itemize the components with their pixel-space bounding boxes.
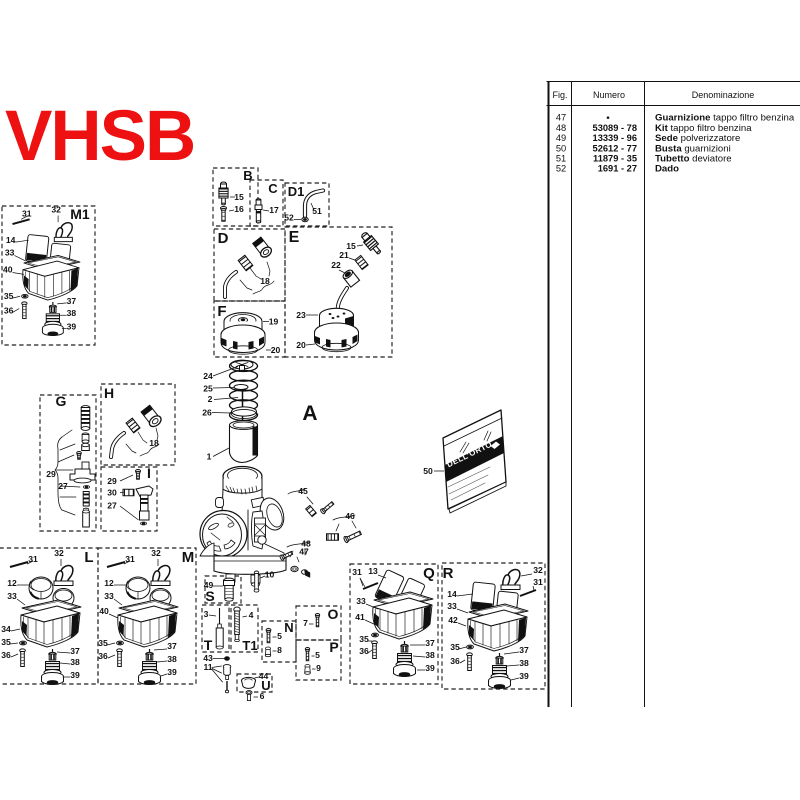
svg-text:51: 51 (556, 154, 566, 164)
svg-text:32: 32 (151, 548, 161, 558)
svg-text:15: 15 (234, 192, 244, 202)
svg-text:53089 - 78: 53089 - 78 (593, 123, 637, 133)
svg-text:35: 35 (98, 638, 108, 648)
svg-text:23: 23 (296, 310, 306, 320)
svg-text:A: A (302, 402, 317, 425)
svg-text:39: 39 (70, 670, 80, 680)
svg-text:F: F (217, 303, 226, 320)
svg-text:14: 14 (447, 589, 457, 599)
svg-text:3: 3 (204, 609, 209, 619)
svg-text:G: G (56, 393, 67, 409)
svg-text:35: 35 (4, 291, 14, 301)
svg-text:37: 37 (67, 296, 77, 306)
svg-text:36: 36 (4, 305, 14, 315)
svg-text:36: 36 (98, 651, 108, 661)
svg-text:39: 39 (425, 663, 435, 673)
svg-text:30: 30 (107, 488, 117, 498)
svg-text:N: N (284, 620, 293, 635)
svg-text:12: 12 (104, 578, 114, 588)
svg-text:B: B (243, 168, 252, 183)
svg-text:T: T (204, 637, 213, 653)
svg-text:Q: Q (423, 565, 435, 582)
svg-text:27: 27 (107, 501, 117, 511)
svg-text:37: 37 (167, 641, 177, 651)
svg-text:19: 19 (269, 317, 279, 327)
svg-text:14: 14 (6, 235, 16, 245)
svg-text:9: 9 (316, 663, 321, 673)
svg-text:12: 12 (7, 578, 17, 588)
svg-text:38: 38 (70, 657, 80, 667)
svg-text:31: 31 (28, 554, 38, 564)
svg-text:D1: D1 (288, 184, 305, 199)
svg-text:L: L (84, 549, 93, 566)
svg-text:39: 39 (519, 671, 529, 681)
svg-text:37: 37 (70, 646, 80, 656)
svg-text:25: 25 (203, 384, 213, 394)
svg-text:39: 39 (67, 322, 77, 332)
svg-text:49: 49 (556, 133, 566, 143)
svg-text:52612 - 77: 52612 - 77 (593, 143, 637, 153)
svg-text:33: 33 (104, 591, 114, 601)
svg-text:47: 47 (556, 113, 566, 123)
svg-text:H: H (104, 385, 114, 401)
svg-text:•: • (606, 113, 609, 123)
svg-text:18: 18 (260, 276, 270, 286)
svg-text:44: 44 (259, 671, 269, 681)
svg-text:11879 - 35: 11879 - 35 (593, 154, 637, 164)
svg-text:31: 31 (125, 554, 135, 564)
svg-text:29: 29 (107, 476, 117, 486)
svg-text:33: 33 (447, 601, 457, 611)
svg-text:46: 46 (345, 511, 355, 521)
svg-text:Fig.: Fig. (552, 90, 567, 100)
svg-text:38: 38 (519, 658, 529, 668)
svg-text:P: P (329, 639, 338, 655)
svg-text:27: 27 (58, 481, 68, 491)
svg-text:39: 39 (167, 667, 177, 677)
svg-text:7: 7 (303, 618, 308, 628)
svg-text:38: 38 (67, 308, 77, 318)
svg-text:I: I (147, 465, 151, 481)
svg-text:33: 33 (356, 596, 366, 606)
svg-text:37: 37 (519, 645, 529, 655)
svg-text:35: 35 (1, 637, 11, 647)
svg-text:13339 - 96: 13339 - 96 (593, 133, 637, 143)
svg-text:38: 38 (425, 650, 435, 660)
svg-text:6: 6 (260, 691, 265, 701)
svg-text:24: 24 (203, 371, 213, 381)
svg-text:52: 52 (556, 164, 566, 174)
svg-text:20: 20 (296, 340, 306, 350)
svg-text:17: 17 (269, 205, 279, 215)
svg-text:34: 34 (1, 624, 11, 634)
svg-text:11: 11 (203, 662, 212, 672)
svg-text:36: 36 (359, 646, 369, 656)
svg-text:T1: T1 (242, 638, 257, 653)
svg-text:Denominazione: Denominazione (692, 90, 755, 100)
svg-text:50: 50 (423, 466, 433, 476)
svg-text:18: 18 (149, 438, 159, 448)
svg-text:29: 29 (46, 469, 56, 479)
svg-text:49: 49 (204, 580, 214, 590)
svg-text:Dado: Dado (655, 164, 679, 175)
svg-text:33: 33 (5, 247, 15, 257)
svg-text:33: 33 (7, 591, 17, 601)
svg-text:32: 32 (51, 205, 61, 215)
svg-text:51: 51 (312, 206, 322, 216)
svg-text:S: S (205, 588, 214, 604)
svg-text:20: 20 (271, 345, 281, 355)
svg-text:35: 35 (359, 634, 369, 644)
svg-text:37: 37 (425, 638, 435, 648)
svg-text:31: 31 (22, 208, 32, 218)
svg-text:38: 38 (167, 654, 177, 664)
svg-text:32: 32 (533, 565, 543, 575)
svg-text:8: 8 (277, 645, 282, 655)
svg-text:4: 4 (249, 610, 254, 620)
svg-text:22: 22 (331, 260, 341, 270)
svg-text:16: 16 (234, 204, 244, 214)
svg-text:41: 41 (355, 612, 365, 622)
svg-text:32: 32 (54, 548, 64, 558)
svg-text:48: 48 (556, 123, 566, 133)
svg-text:1691 - 27: 1691 - 27 (598, 164, 637, 174)
svg-text:40: 40 (99, 606, 109, 616)
svg-text:5: 5 (315, 650, 320, 660)
svg-text:21: 21 (339, 250, 349, 260)
svg-text:1: 1 (207, 452, 212, 462)
svg-text:42: 42 (448, 615, 458, 625)
svg-text:C: C (268, 181, 278, 196)
svg-text:VHSB: VHSB (5, 97, 194, 176)
svg-text:O: O (328, 606, 339, 622)
svg-text:10: 10 (265, 570, 275, 580)
svg-text:36: 36 (1, 650, 11, 660)
svg-text:36: 36 (450, 656, 460, 666)
svg-text:E: E (289, 229, 300, 246)
svg-text:40: 40 (3, 265, 13, 275)
svg-text:26: 26 (202, 408, 212, 418)
svg-text:50: 50 (556, 143, 566, 153)
svg-text:31: 31 (352, 567, 362, 577)
svg-text:45: 45 (298, 486, 308, 496)
svg-text:5: 5 (277, 631, 282, 641)
svg-text:13: 13 (368, 566, 378, 576)
svg-text:52: 52 (284, 213, 294, 223)
svg-text:47: 47 (299, 547, 309, 557)
svg-text:2: 2 (208, 394, 213, 404)
svg-text:35: 35 (450, 642, 460, 652)
svg-text:M: M (182, 549, 195, 566)
svg-text:31: 31 (533, 577, 543, 587)
svg-text:R: R (443, 565, 454, 582)
svg-text:D: D (218, 230, 229, 247)
svg-text:Numero: Numero (593, 90, 625, 100)
svg-text:M1: M1 (70, 206, 90, 222)
